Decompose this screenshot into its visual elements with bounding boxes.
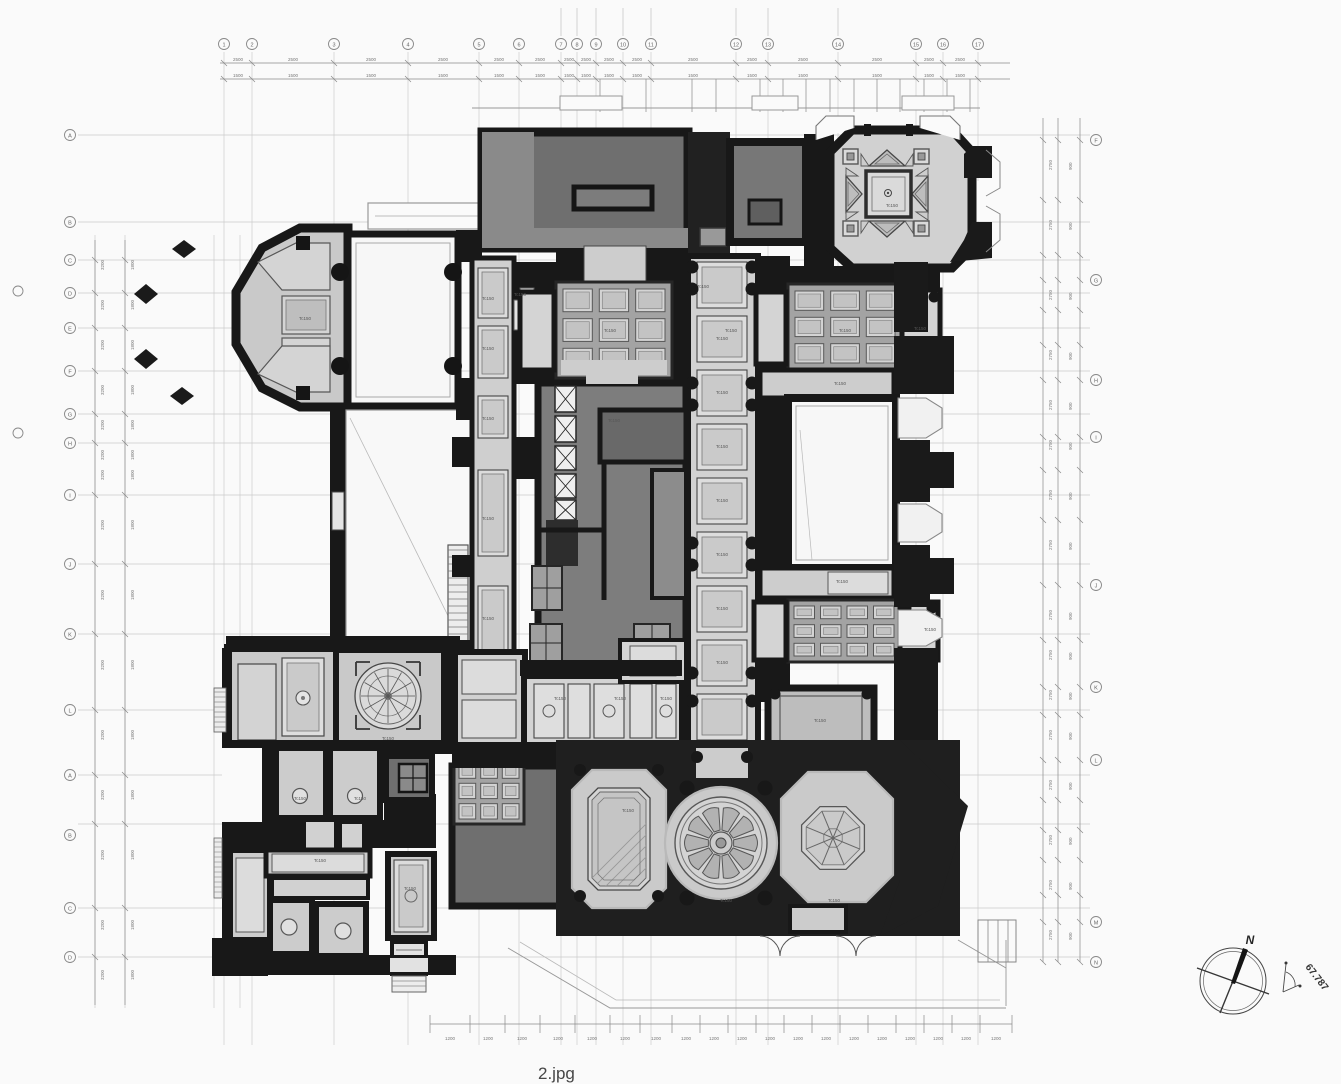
svg-text:2500: 2500 (955, 57, 966, 62)
svg-text:Tc150: Tc150 (886, 203, 899, 208)
svg-text:900: 900 (1068, 402, 1073, 410)
svg-text:2750: 2750 (1048, 489, 1053, 500)
svg-text:3200: 3200 (100, 729, 105, 740)
svg-text:Tc150: Tc150 (836, 579, 849, 584)
svg-text:3200: 3200 (100, 919, 105, 930)
svg-text:2750: 2750 (1048, 689, 1053, 700)
svg-text:H: H (68, 442, 72, 448)
svg-text:1800: 1800 (130, 589, 135, 600)
svg-text:N: N (1246, 933, 1255, 947)
svg-text:1200: 1200 (517, 1036, 528, 1041)
svg-text:Tc150: Tc150 (839, 328, 852, 333)
svg-text:Tc150: Tc150 (294, 796, 307, 801)
svg-text:2750: 2750 (1048, 349, 1053, 360)
svg-text:1800: 1800 (130, 469, 135, 480)
svg-text:2500: 2500 (438, 57, 449, 62)
svg-text:3200: 3200 (100, 789, 105, 800)
svg-text:Tc150: Tc150 (482, 616, 495, 621)
svg-text:1500: 1500 (288, 73, 299, 78)
svg-text:B: B (68, 834, 72, 840)
svg-text:2500: 2500 (233, 57, 244, 62)
svg-text:1500: 1500 (955, 73, 966, 78)
svg-text:1800: 1800 (130, 919, 135, 930)
svg-text:11: 11 (648, 43, 654, 49)
svg-text:900: 900 (1068, 837, 1073, 845)
svg-text:Tc150: Tc150 (725, 328, 738, 333)
svg-text:Tc150: Tc150 (382, 736, 395, 741)
svg-text:10: 10 (620, 43, 626, 49)
svg-text:2750: 2750 (1048, 539, 1053, 550)
svg-text:2500: 2500 (604, 57, 615, 62)
svg-text:1800: 1800 (130, 384, 135, 395)
svg-text:L: L (1094, 759, 1097, 765)
svg-text:2500: 2500 (366, 57, 377, 62)
svg-text:D: D (68, 292, 72, 298)
svg-text:Tc150: Tc150 (314, 858, 327, 863)
svg-text:J: J (1095, 584, 1098, 590)
svg-text:3: 3 (332, 43, 335, 49)
svg-text:1800: 1800 (130, 259, 135, 270)
svg-text:1200: 1200 (709, 1036, 720, 1041)
svg-text:2500: 2500 (924, 57, 935, 62)
svg-text:14: 14 (835, 43, 841, 49)
svg-text:Tc150: Tc150 (914, 326, 927, 331)
svg-text:900: 900 (1068, 732, 1073, 740)
svg-text:1500: 1500 (438, 73, 449, 78)
svg-text:1800: 1800 (130, 659, 135, 670)
svg-text:Tc150: Tc150 (716, 444, 729, 449)
svg-text:6: 6 (517, 43, 520, 49)
svg-text:A: A (68, 774, 72, 780)
svg-text:900: 900 (1068, 492, 1073, 500)
svg-text:900: 900 (1068, 352, 1073, 360)
svg-text:900: 900 (1068, 692, 1073, 700)
svg-text:A: A (68, 134, 72, 140)
svg-text:1200: 1200 (991, 1036, 1002, 1041)
svg-text:1200: 1200 (877, 1036, 888, 1041)
svg-text:900: 900 (1068, 782, 1073, 790)
svg-text:1200: 1200 (553, 1036, 564, 1041)
svg-text:1200: 1200 (587, 1036, 598, 1041)
svg-text:1500: 1500 (494, 73, 505, 78)
svg-text:Tc150: Tc150 (814, 718, 827, 723)
svg-text:2750: 2750 (1048, 399, 1053, 410)
svg-text:12: 12 (733, 43, 739, 49)
svg-text:Tc150: Tc150 (716, 606, 729, 611)
svg-text:15: 15 (913, 43, 919, 49)
svg-text:900: 900 (1068, 442, 1073, 450)
svg-text:C: C (68, 907, 72, 913)
svg-text:Tc150: Tc150 (697, 284, 710, 289)
svg-text:8: 8 (575, 43, 578, 49)
svg-text:N: N (1094, 961, 1098, 967)
svg-text:900: 900 (1068, 932, 1073, 940)
svg-text:1200: 1200 (651, 1036, 662, 1041)
svg-text:1500: 1500 (581, 73, 592, 78)
svg-text:3200: 3200 (100, 419, 105, 430)
svg-text:Tc150: Tc150 (354, 796, 367, 801)
svg-text:1200: 1200 (737, 1036, 748, 1041)
svg-text:2500: 2500 (564, 57, 575, 62)
svg-text:Tc150: Tc150 (482, 416, 495, 421)
svg-text:Tc150: Tc150 (828, 898, 841, 903)
svg-text:2750: 2750 (1048, 219, 1053, 230)
svg-text:Tc150: Tc150 (604, 328, 617, 333)
svg-text:1: 1 (222, 43, 225, 49)
svg-text:Tc150: Tc150 (514, 292, 527, 297)
svg-text:1800: 1800 (130, 299, 135, 310)
svg-text:4: 4 (406, 43, 409, 49)
svg-text:3200: 3200 (100, 519, 105, 530)
svg-text:3200: 3200 (100, 259, 105, 270)
svg-text:1500: 1500 (535, 73, 546, 78)
svg-text:1500: 1500 (747, 73, 758, 78)
svg-text:13: 13 (765, 43, 771, 49)
svg-text:Tc150: Tc150 (716, 498, 729, 503)
svg-text:1500: 1500 (604, 73, 615, 78)
svg-text:1500: 1500 (798, 73, 809, 78)
svg-text:2750: 2750 (1048, 649, 1053, 660)
svg-text:7: 7 (559, 43, 562, 49)
svg-text:G: G (68, 413, 72, 419)
svg-text:Tc150: Tc150 (482, 346, 495, 351)
svg-text:1200: 1200 (620, 1036, 631, 1041)
svg-text:K: K (68, 633, 72, 639)
svg-text:2: 2 (250, 43, 253, 49)
svg-text:1200: 1200 (483, 1036, 494, 1041)
svg-text:K: K (1094, 686, 1098, 692)
svg-text:1800: 1800 (130, 729, 135, 740)
svg-text:L: L (68, 709, 71, 715)
svg-text:2750: 2750 (1048, 609, 1053, 620)
svg-text:2500: 2500 (535, 57, 546, 62)
svg-text:2750: 2750 (1048, 879, 1053, 890)
svg-text:3200: 3200 (100, 589, 105, 600)
svg-text:1200: 1200 (445, 1036, 456, 1041)
svg-text:Tc150: Tc150 (299, 316, 312, 321)
svg-text:Tc150: Tc150 (716, 336, 729, 341)
svg-text:2750: 2750 (1048, 779, 1053, 790)
svg-text:1500: 1500 (366, 73, 377, 78)
svg-text:16: 16 (940, 43, 946, 49)
svg-text:1500: 1500 (924, 73, 935, 78)
svg-text:Tc150: Tc150 (482, 516, 495, 521)
svg-text:2750: 2750 (1048, 439, 1053, 450)
svg-text:1800: 1800 (130, 969, 135, 980)
svg-text:900: 900 (1068, 612, 1073, 620)
svg-text:1800: 1800 (130, 449, 135, 460)
svg-text:Tc150: Tc150 (924, 627, 937, 632)
svg-text:1200: 1200 (905, 1036, 916, 1041)
svg-text:3200: 3200 (100, 384, 105, 395)
svg-text:E: E (68, 327, 72, 333)
svg-text:Tc150: Tc150 (622, 808, 635, 813)
svg-text:3200: 3200 (100, 469, 105, 480)
svg-text:J: J (69, 563, 72, 569)
svg-text:1800: 1800 (130, 849, 135, 860)
svg-text:2750: 2750 (1048, 834, 1053, 845)
svg-text:900: 900 (1068, 222, 1073, 230)
svg-text:Tc150: Tc150 (834, 381, 847, 386)
svg-text:1800: 1800 (130, 519, 135, 530)
svg-text:1200: 1200 (961, 1036, 972, 1041)
svg-text:2.jpg: 2.jpg (538, 1064, 575, 1083)
svg-text:Tc150: Tc150 (660, 696, 673, 701)
svg-text:3200: 3200 (100, 339, 105, 350)
svg-text:2500: 2500 (581, 57, 592, 62)
svg-text:900: 900 (1068, 292, 1073, 300)
svg-text:Tc150: Tc150 (716, 552, 729, 557)
svg-text:2500: 2500 (798, 57, 809, 62)
svg-text:3200: 3200 (100, 449, 105, 460)
svg-text:C: C (68, 259, 72, 265)
svg-text:2500: 2500 (872, 57, 883, 62)
svg-text:Tc150: Tc150 (554, 696, 567, 701)
svg-text:Tc150: Tc150 (404, 886, 417, 891)
svg-text:Tc150: Tc150 (716, 660, 729, 665)
svg-text:D: D (68, 956, 72, 962)
svg-text:1200: 1200 (765, 1036, 776, 1041)
svg-text:1500: 1500 (872, 73, 883, 78)
svg-text:2750: 2750 (1048, 159, 1053, 170)
svg-text:3200: 3200 (100, 659, 105, 670)
svg-text:1200: 1200 (681, 1036, 692, 1041)
svg-text:2750: 2750 (1048, 289, 1053, 300)
svg-text:2500: 2500 (632, 57, 643, 62)
svg-text:9: 9 (594, 43, 597, 49)
svg-text:2500: 2500 (494, 57, 505, 62)
svg-text:1500: 1500 (233, 73, 244, 78)
svg-text:5: 5 (477, 43, 480, 49)
svg-text:1200: 1200 (793, 1036, 804, 1041)
svg-text:H: H (1094, 379, 1098, 385)
svg-text:900: 900 (1068, 162, 1073, 170)
svg-text:900: 900 (1068, 652, 1073, 660)
svg-text:Tc150: Tc150 (608, 418, 621, 423)
svg-text:2500: 2500 (288, 57, 299, 62)
svg-text:Tc150: Tc150 (720, 898, 733, 903)
svg-text:G: G (1094, 279, 1098, 285)
svg-text:2500: 2500 (747, 57, 758, 62)
svg-text:3200: 3200 (100, 299, 105, 310)
svg-text:1500: 1500 (688, 73, 699, 78)
svg-text:3200: 3200 (100, 969, 105, 980)
svg-text:3200: 3200 (100, 849, 105, 860)
svg-text:B: B (68, 221, 72, 227)
svg-text:Tc150: Tc150 (482, 296, 495, 301)
svg-text:M: M (1094, 921, 1099, 927)
svg-text:1200: 1200 (821, 1036, 832, 1041)
svg-text:1200: 1200 (849, 1036, 860, 1041)
svg-text:2500: 2500 (688, 57, 699, 62)
svg-text:2750: 2750 (1048, 729, 1053, 740)
svg-text:1500: 1500 (564, 73, 575, 78)
svg-text:2750: 2750 (1048, 929, 1053, 940)
svg-text:1800: 1800 (130, 789, 135, 800)
svg-text:1800: 1800 (130, 419, 135, 430)
svg-text:Tc150: Tc150 (614, 696, 627, 701)
svg-text:1800: 1800 (130, 339, 135, 350)
svg-text:900: 900 (1068, 882, 1073, 890)
svg-text:1500: 1500 (632, 73, 643, 78)
svg-text:1200: 1200 (933, 1036, 944, 1041)
svg-text:17: 17 (975, 43, 981, 49)
svg-text:900: 900 (1068, 542, 1073, 550)
svg-text:Tc150: Tc150 (716, 390, 729, 395)
